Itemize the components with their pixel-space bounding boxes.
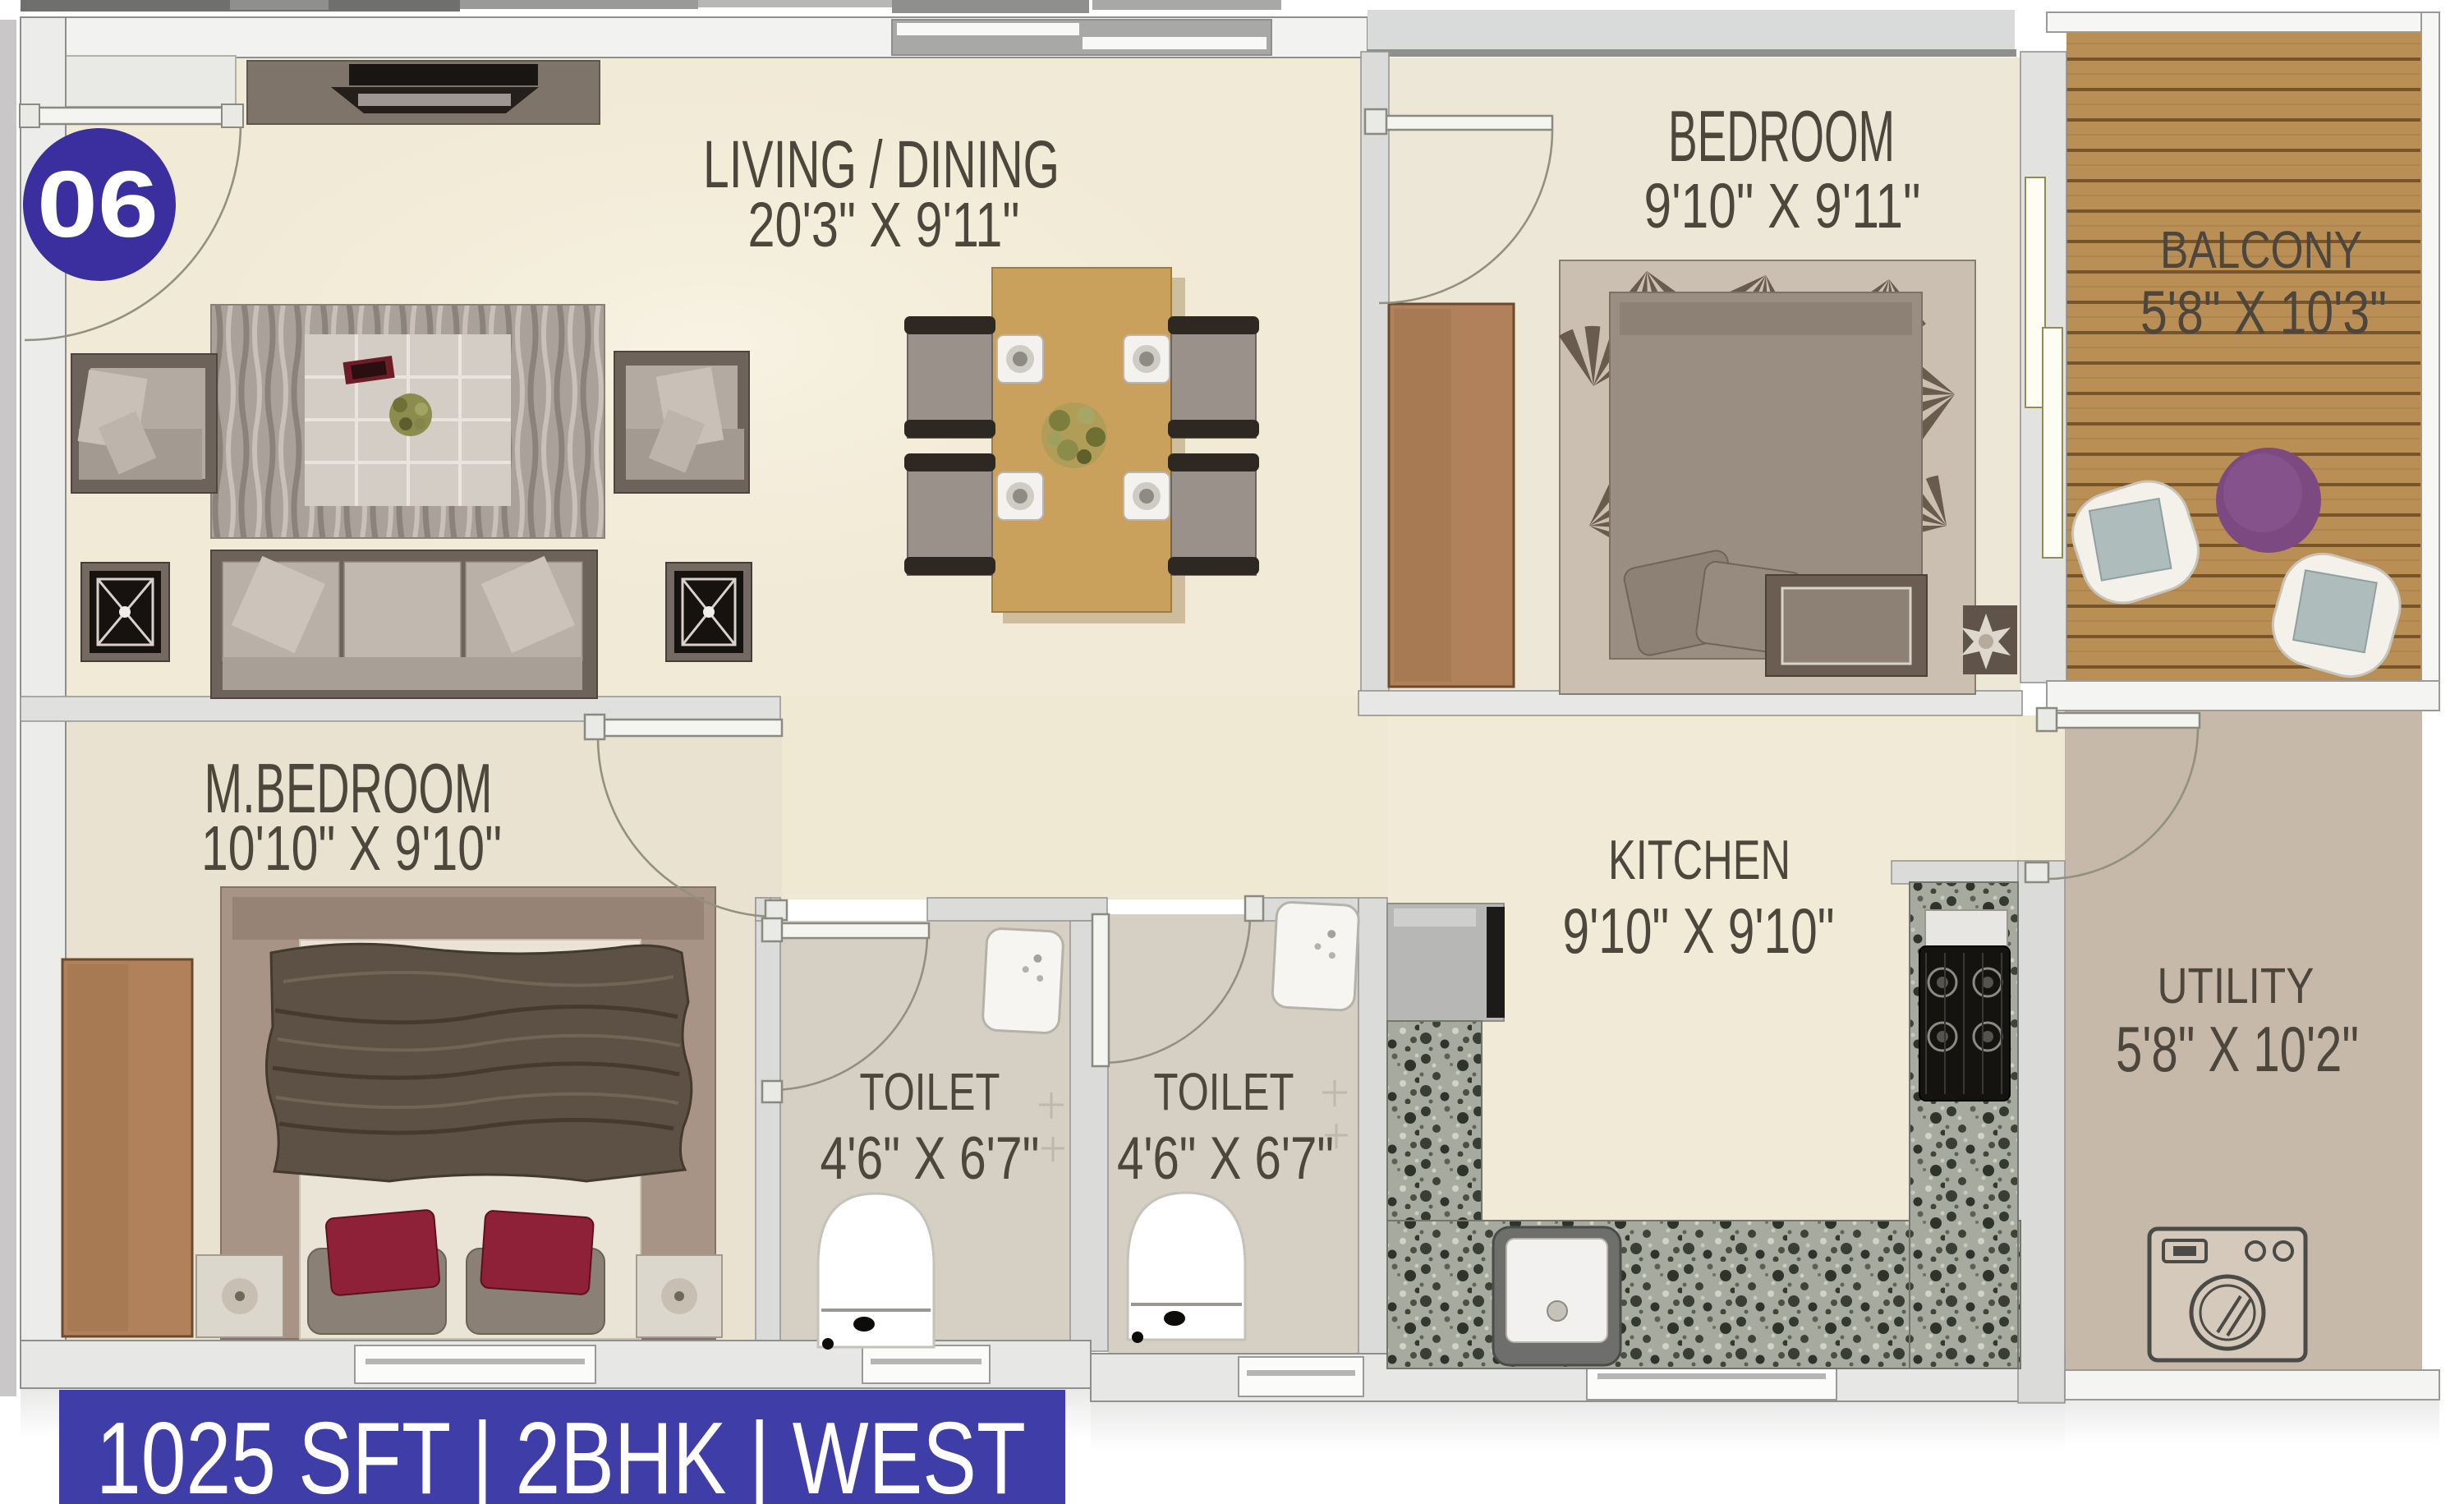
svg-text:UTILITY: UTILITY: [2158, 958, 2315, 1014]
svg-text:KITCHEN: KITCHEN: [1608, 829, 1791, 891]
svg-text:06: 06: [37, 152, 159, 257]
svg-text:5'8" X 10'3": 5'8" X 10'3": [2140, 278, 2387, 347]
svg-text:10'10" X 9'10": 10'10" X 9'10": [201, 813, 502, 884]
svg-text:20'3" X 9'11": 20'3" X 9'11": [748, 190, 1020, 260]
svg-text:TOILET: TOILET: [1154, 1062, 1294, 1121]
svg-text:9'10" X 9'10": 9'10" X 9'10": [1563, 895, 1835, 967]
svg-text:BEDROOM: BEDROOM: [1668, 95, 1895, 177]
svg-text:5'8" X 10'2": 5'8" X 10'2": [2116, 1013, 2359, 1085]
svg-text:4'6" X 6'7": 4'6" X 6'7": [1117, 1125, 1334, 1192]
svg-text:9'10" X 9'11": 9'10" X 9'11": [1644, 171, 1921, 241]
svg-text:1025 SFT | 2BHK | WEST: 1025 SFT | 2BHK | WEST: [96, 1402, 1026, 1504]
svg-text:BALCONY: BALCONY: [2160, 220, 2362, 279]
svg-text:TOILET: TOILET: [860, 1062, 1000, 1121]
svg-text:4'6" X 6'7": 4'6" X 6'7": [821, 1125, 1040, 1192]
